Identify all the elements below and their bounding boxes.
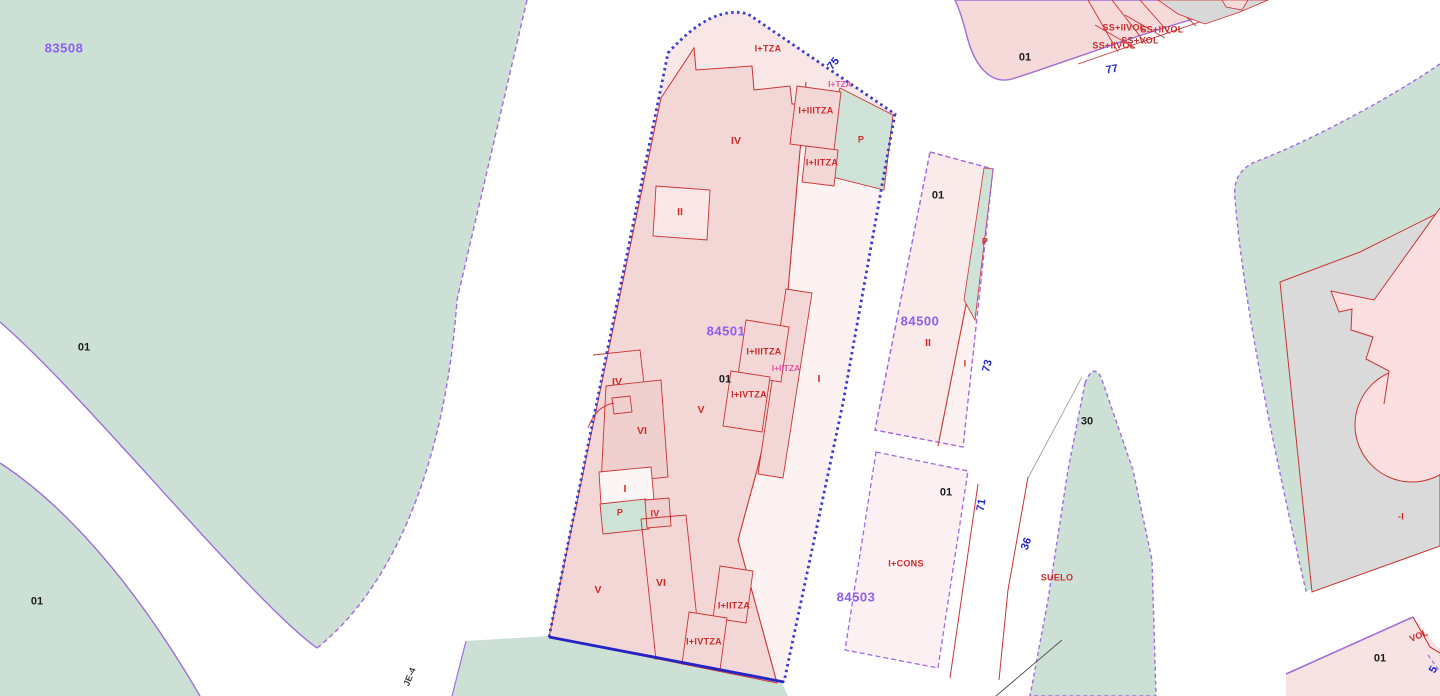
parcel-84501-selected[interactable] [549,12,895,683]
parcel-84503[interactable] [845,452,978,678]
cadastral-map-viewport: 8350884501845008450301010101010101307577… [0,0,1440,696]
parcel-84500[interactable] [875,152,993,447]
north-parcel [955,0,1268,80]
cadastral-map-canvas[interactable] [0,0,1440,696]
